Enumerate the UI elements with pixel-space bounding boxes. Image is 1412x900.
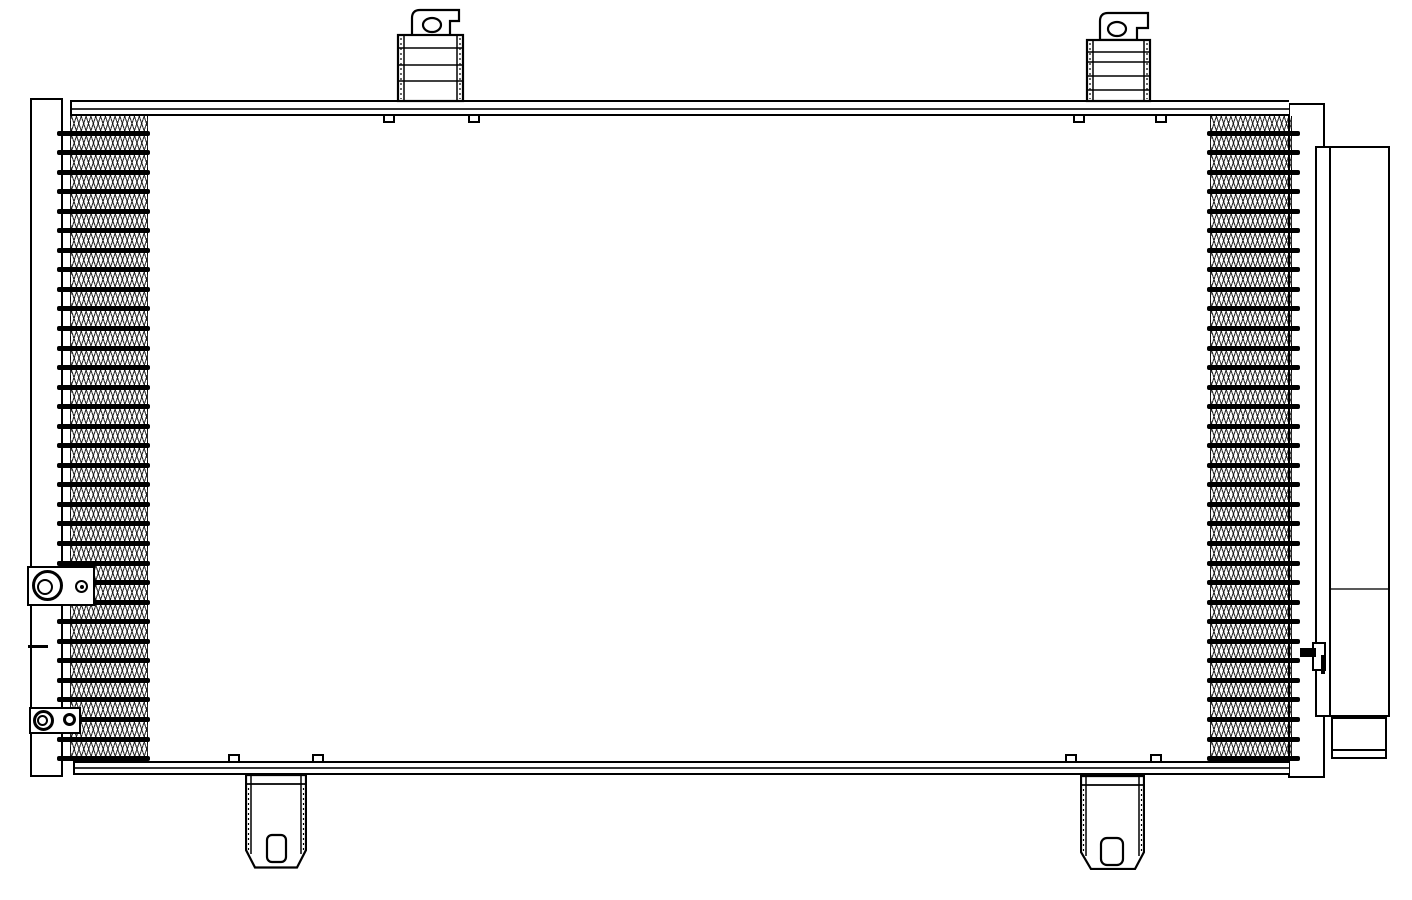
fin-band bbox=[1210, 448, 1292, 463]
fin-tube-row bbox=[57, 331, 150, 351]
fin-band bbox=[1210, 468, 1292, 483]
fin-band bbox=[70, 331, 148, 346]
fin-tube-row bbox=[1207, 702, 1300, 722]
fin-tube-row bbox=[57, 663, 150, 683]
fin-band bbox=[1210, 605, 1292, 620]
fin-tube-row bbox=[1207, 136, 1300, 156]
fin-band bbox=[70, 663, 148, 678]
fin-tube-row bbox=[1207, 175, 1300, 195]
fin-band bbox=[70, 487, 148, 502]
fin-band bbox=[70, 526, 148, 541]
fin-tube-row bbox=[57, 175, 150, 195]
fin-band bbox=[1210, 702, 1292, 717]
fin-tube-row bbox=[57, 487, 150, 507]
fin-band bbox=[70, 683, 148, 698]
fin-band bbox=[1210, 663, 1292, 678]
fin-tube-row bbox=[1207, 390, 1300, 410]
fin-band bbox=[70, 468, 148, 483]
receiver-drier-bottom-cap bbox=[1331, 717, 1387, 759]
fin-band bbox=[70, 136, 148, 151]
fin-band bbox=[70, 272, 148, 287]
fin-tube-row bbox=[1207, 409, 1300, 429]
top-rail-tab bbox=[468, 116, 480, 123]
fin-tube-row bbox=[1207, 429, 1300, 449]
bracket-slot-hole bbox=[267, 835, 286, 862]
fin-tube-row bbox=[1207, 487, 1300, 507]
fin-tube-row bbox=[57, 136, 150, 156]
fin-tube-row bbox=[1207, 448, 1300, 468]
fin-tube-row bbox=[57, 742, 150, 762]
fin-tube-row bbox=[1207, 370, 1300, 390]
fin-band bbox=[1210, 526, 1292, 541]
bottom-rail bbox=[73, 761, 1289, 775]
fin-band bbox=[1210, 155, 1292, 170]
fin-tube-row bbox=[57, 526, 150, 546]
fin-tube-row bbox=[1207, 507, 1300, 527]
fin-band bbox=[70, 644, 148, 659]
fin-tube-row bbox=[1207, 214, 1300, 234]
fin-band bbox=[70, 116, 148, 131]
bottom-rail-tab bbox=[228, 754, 240, 761]
receiver-drier-inner-wall bbox=[1329, 148, 1331, 715]
fin-tube-row bbox=[1207, 546, 1300, 566]
fin-band bbox=[1210, 487, 1292, 502]
fin-band bbox=[1210, 233, 1292, 248]
fin-tube-row bbox=[1207, 272, 1300, 292]
fin-band bbox=[1210, 507, 1292, 522]
fin-band bbox=[1210, 644, 1292, 659]
receiver-drier-seam bbox=[1331, 588, 1388, 590]
fin-band bbox=[70, 448, 148, 463]
fin-tube-row bbox=[1207, 351, 1300, 371]
fin-tube-row bbox=[57, 409, 150, 429]
fin-tube-row bbox=[1207, 526, 1300, 546]
fin-tube-row bbox=[1207, 624, 1300, 644]
fin-tube-row bbox=[57, 233, 150, 253]
fin-band bbox=[70, 605, 148, 620]
fin-band bbox=[1210, 409, 1292, 424]
fin-band bbox=[70, 233, 148, 248]
fin-band bbox=[1210, 722, 1292, 737]
fin-band bbox=[70, 546, 148, 561]
fin-band bbox=[1210, 390, 1292, 405]
fin-band bbox=[1210, 742, 1292, 757]
fin-tube-row bbox=[1207, 742, 1300, 762]
fin-tube-row bbox=[57, 683, 150, 703]
fin-band bbox=[1210, 624, 1292, 639]
fin-tube-row bbox=[57, 155, 150, 175]
fin-band bbox=[70, 702, 148, 717]
fin-tube-row bbox=[1207, 566, 1300, 586]
fin-tube-row bbox=[1207, 585, 1300, 605]
fin-band bbox=[1210, 175, 1292, 190]
fin-tube-row bbox=[57, 116, 150, 136]
fin-band bbox=[70, 507, 148, 522]
fin-band bbox=[1210, 311, 1292, 326]
lower-fitting-large-port-bore bbox=[37, 715, 48, 726]
fin-tube-row bbox=[57, 624, 150, 644]
fin-band bbox=[70, 194, 148, 209]
bracket-hole bbox=[423, 18, 441, 32]
fin-tube-row bbox=[57, 370, 150, 390]
fin-band bbox=[1210, 566, 1292, 581]
fin-tube-row bbox=[1207, 194, 1300, 214]
left-plate-tick-mark bbox=[28, 645, 48, 648]
top-right-mount-bracket bbox=[1085, 10, 1153, 105]
fin-zone-left bbox=[57, 116, 150, 761]
fin-band bbox=[70, 351, 148, 366]
fin-band bbox=[1210, 331, 1292, 346]
fin-tube-row bbox=[57, 311, 150, 331]
fin-tube-row bbox=[57, 351, 150, 371]
upper-fitting-large-port-bore bbox=[37, 579, 53, 595]
fin-band bbox=[70, 409, 148, 424]
bracket-hole bbox=[1108, 22, 1126, 36]
fin-tube-row bbox=[57, 292, 150, 312]
fin-tube-row bbox=[57, 214, 150, 234]
fin-tube-row bbox=[57, 272, 150, 292]
receiver-drier-body bbox=[1315, 146, 1390, 717]
fin-band bbox=[70, 624, 148, 639]
fin-band bbox=[70, 722, 148, 737]
lower-fitting-bolt-hole bbox=[63, 713, 76, 726]
fin-band bbox=[1210, 585, 1292, 600]
fin-band bbox=[70, 253, 148, 268]
fin-tube-row bbox=[1207, 605, 1300, 625]
fin-band bbox=[70, 155, 148, 170]
fin-tube-row bbox=[1207, 468, 1300, 488]
fin-zone-right bbox=[1207, 116, 1300, 761]
fin-band bbox=[1210, 272, 1292, 287]
fin-tube-row bbox=[57, 253, 150, 273]
fin-band bbox=[70, 292, 148, 307]
bottom-left-mount-bracket bbox=[245, 774, 307, 869]
fin-tube-row bbox=[57, 194, 150, 214]
fin-tube-row bbox=[57, 468, 150, 488]
fin-tube-row bbox=[1207, 683, 1300, 703]
bottom-rail-tab bbox=[1065, 754, 1077, 761]
fin-tube-row bbox=[57, 605, 150, 625]
fin-band bbox=[70, 311, 148, 326]
fin-tube-row bbox=[1207, 311, 1300, 331]
fin-band bbox=[70, 175, 148, 190]
top-rail-tab bbox=[1073, 116, 1085, 123]
fin-band bbox=[70, 742, 148, 757]
fin-band bbox=[70, 370, 148, 385]
fin-tube-row bbox=[1207, 292, 1300, 312]
fin-tube-row bbox=[57, 448, 150, 468]
fin-band bbox=[70, 429, 148, 444]
upper-pipe-fitting bbox=[27, 566, 95, 606]
fin-tube-row bbox=[1207, 722, 1300, 742]
fin-band bbox=[1210, 116, 1292, 131]
fin-band bbox=[1210, 429, 1292, 444]
bottom-right-mount-bracket bbox=[1080, 775, 1145, 870]
fin-band bbox=[1210, 253, 1292, 268]
fin-tube-row bbox=[57, 429, 150, 449]
receiver-drier-connector-stub bbox=[1300, 648, 1316, 657]
condenser-line-drawing bbox=[0, 0, 1412, 900]
upper-fitting-bolt-center bbox=[80, 585, 84, 589]
bottom-rail-tab bbox=[1150, 754, 1162, 761]
top-rail-tab bbox=[1155, 116, 1167, 123]
fin-tube-row bbox=[1207, 233, 1300, 253]
fin-band bbox=[1210, 194, 1292, 209]
fin-band bbox=[1210, 683, 1292, 698]
fin-band bbox=[1210, 351, 1292, 366]
receiver-drier-connector-tail bbox=[1321, 655, 1325, 674]
fin-band bbox=[1210, 546, 1292, 561]
bracket-slot-hole bbox=[1101, 838, 1123, 865]
fin-band bbox=[1210, 136, 1292, 151]
fin-band bbox=[1210, 370, 1292, 385]
bottom-rail-tab bbox=[312, 754, 324, 761]
fin-tube-row bbox=[1207, 644, 1300, 664]
fin-tube-row bbox=[1207, 116, 1300, 136]
lower-pipe-fitting bbox=[29, 707, 81, 734]
fin-tube-row bbox=[1207, 663, 1300, 683]
fin-band bbox=[1210, 292, 1292, 307]
fin-tube-row bbox=[1207, 155, 1300, 175]
fin-band bbox=[70, 390, 148, 405]
fin-tube-row bbox=[57, 390, 150, 410]
top-rail-tab bbox=[383, 116, 395, 123]
fin-band bbox=[70, 214, 148, 229]
fin-tube-row bbox=[57, 507, 150, 527]
fin-tube-row bbox=[57, 546, 150, 566]
top-left-mount-bracket bbox=[396, 8, 466, 104]
fin-tube-row bbox=[1207, 253, 1300, 273]
fin-tube-row bbox=[57, 644, 150, 664]
fin-tube-row bbox=[1207, 331, 1300, 351]
fin-band bbox=[1210, 214, 1292, 229]
